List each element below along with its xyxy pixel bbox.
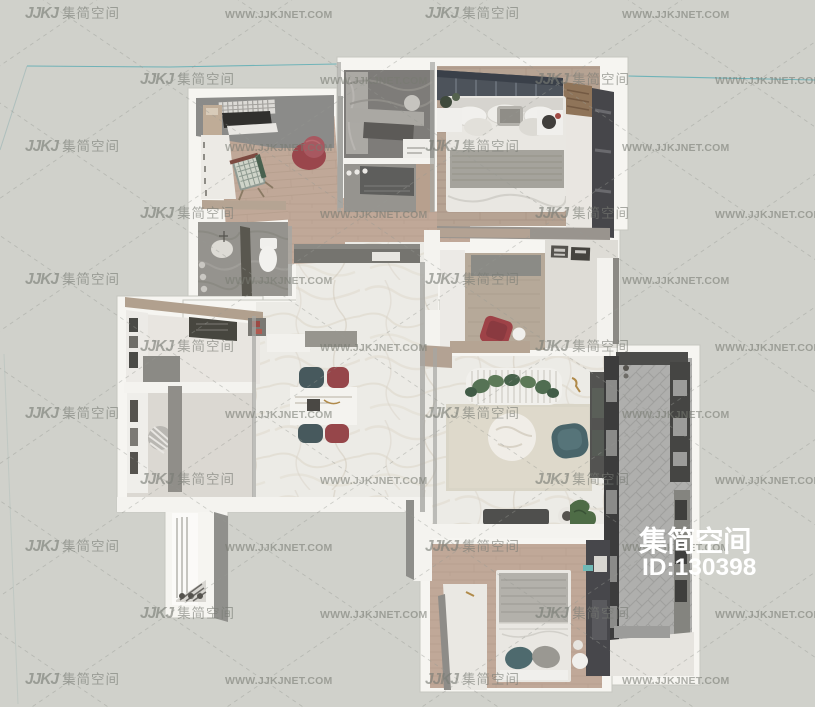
svg-text:JJKJ集简空间: JJKJ集简空间 — [425, 538, 520, 555]
svg-text:JJKJ集简空间: JJKJ集简空间 — [140, 605, 235, 622]
svg-text:WWW.JJKJNET.COM: WWW.JJKJNET.COM — [622, 9, 729, 21]
svg-text:JJKJ集简空间: JJKJ集简空间 — [425, 271, 520, 288]
svg-text:WWW.JJKJNET.COM: WWW.JJKJNET.COM — [225, 675, 332, 687]
svg-text:JJKJ集简空间: JJKJ集简空间 — [140, 471, 235, 488]
svg-text:JJKJ集简空间: JJKJ集简空间 — [425, 5, 520, 22]
svg-text:JJKJ集简空间: JJKJ集简空间 — [25, 405, 120, 422]
svg-text:WWW.JJKJNET.COM: WWW.JJKJNET.COM — [320, 342, 427, 354]
svg-text:JJKJ集简空间: JJKJ集简空间 — [535, 205, 630, 222]
svg-text:WWW.JJKJNET.COM: WWW.JJKJNET.COM — [225, 9, 332, 21]
svg-text:JJKJ集简空间: JJKJ集简空间 — [535, 605, 630, 622]
svg-text:WWW.JJKJNET.COM: WWW.JJKJNET.COM — [715, 209, 815, 221]
svg-text:JJKJ集简空间: JJKJ集简空间 — [140, 71, 235, 88]
svg-text:JJKJ集简空间: JJKJ集简空间 — [25, 538, 120, 555]
svg-text:WWW.JJKJNET.COM: WWW.JJKJNET.COM — [320, 609, 427, 621]
svg-text:JJKJ集简空间: JJKJ集简空间 — [535, 338, 630, 355]
svg-text:WWW.JJKJNET.COM: WWW.JJKJNET.COM — [715, 342, 815, 354]
svg-text:JJKJ集简空间: JJKJ集简空间 — [535, 471, 630, 488]
svg-text:JJKJ集简空间: JJKJ集简空间 — [425, 138, 520, 155]
svg-text:JJKJ集简空间: JJKJ集简空间 — [140, 205, 235, 222]
svg-text:WWW.JJKJNET.COM: WWW.JJKJNET.COM — [225, 409, 332, 421]
svg-text:WWW.JJKJNET.COM: WWW.JJKJNET.COM — [320, 475, 427, 487]
svg-text:WWW.JJKJNET.COM: WWW.JJKJNET.COM — [622, 409, 729, 421]
svg-text:JJKJ集简空间: JJKJ集简空间 — [425, 671, 520, 688]
svg-text:WWW.JJKJNET.COM: WWW.JJKJNET.COM — [715, 75, 815, 87]
svg-text:JJKJ集简空间: JJKJ集简空间 — [535, 71, 630, 88]
svg-text:WWW.JJKJNET.COM: WWW.JJKJNET.COM — [622, 675, 729, 687]
svg-text:WWW.JJKJNET.COM: WWW.JJKJNET.COM — [622, 142, 729, 154]
svg-text:JJKJ集简空间: JJKJ集简空间 — [25, 271, 120, 288]
svg-text:WWW.JJKJNET.COM: WWW.JJKJNET.COM — [715, 609, 815, 621]
svg-text:JJKJ集简空间: JJKJ集简空间 — [25, 5, 120, 22]
svg-text:JJKJ集简空间: JJKJ集简空间 — [25, 671, 120, 688]
svg-text:ID:130398: ID:130398 — [642, 554, 756, 581]
svg-text:WWW.JJKJNET.COM: WWW.JJKJNET.COM — [320, 75, 427, 87]
svg-text:JJKJ集简空间: JJKJ集简空间 — [425, 405, 520, 422]
svg-text:JJKJ集简空间: JJKJ集简空间 — [25, 138, 120, 155]
svg-text:JJKJ集简空间: JJKJ集简空间 — [140, 338, 235, 355]
svg-text:WWW.JJKJNET.COM: WWW.JJKJNET.COM — [225, 275, 332, 287]
svg-text:WWW.JJKJNET.COM: WWW.JJKJNET.COM — [225, 542, 332, 554]
svg-text:WWW.JJKJNET.COM: WWW.JJKJNET.COM — [622, 275, 729, 287]
svg-text:WWW.JJKJNET.COM: WWW.JJKJNET.COM — [225, 142, 332, 154]
svg-text:WWW.JJKJNET.COM: WWW.JJKJNET.COM — [715, 475, 815, 487]
svg-text:WWW.JJKJNET.COM: WWW.JJKJNET.COM — [320, 209, 427, 221]
